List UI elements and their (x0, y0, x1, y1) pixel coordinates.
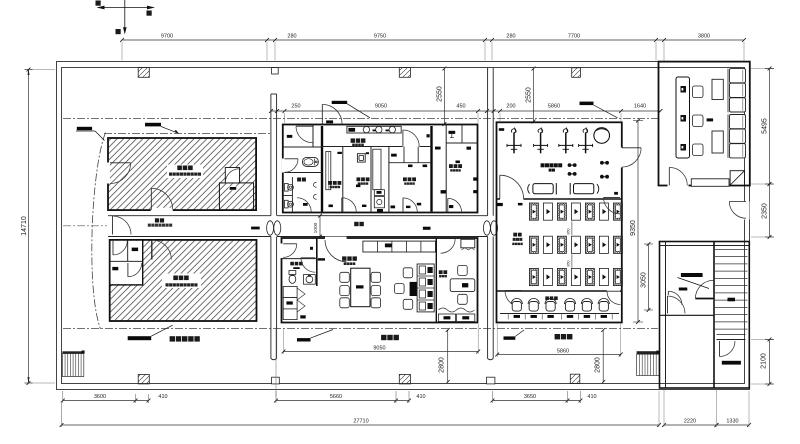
svg-text:410: 410 (587, 394, 596, 400)
svg-text:2100: 2100 (761, 353, 768, 369)
svg-text:410: 410 (158, 394, 167, 400)
svg-text:280: 280 (287, 34, 296, 40)
svg-text:280: 280 (506, 34, 515, 40)
svg-text:9700: 9700 (161, 34, 173, 40)
svg-text:2550: 2550 (526, 87, 533, 103)
svg-text:2800: 2800 (595, 357, 602, 373)
svg-text:5860: 5860 (557, 349, 569, 355)
svg-text:3600: 3600 (94, 394, 106, 400)
svg-text:5860: 5860 (548, 104, 560, 110)
svg-text:27710: 27710 (353, 419, 368, 425)
svg-text:9050: 9050 (375, 104, 387, 110)
svg-text:3650: 3650 (524, 394, 536, 400)
svg-text:1640: 1640 (634, 104, 646, 110)
svg-text:5660: 5660 (330, 394, 342, 400)
svg-text:410: 410 (416, 394, 425, 400)
svg-text:14710: 14710 (21, 216, 28, 236)
svg-text:2220: 2220 (684, 419, 696, 425)
svg-text:850: 850 (567, 261, 571, 267)
svg-text:2550: 2550 (437, 86, 444, 102)
svg-text:3050: 3050 (641, 272, 648, 288)
svg-text:3800: 3800 (698, 34, 710, 40)
svg-text:2800: 2800 (439, 357, 446, 373)
svg-text:2350: 2350 (762, 203, 769, 219)
svg-text:1330: 1330 (726, 419, 738, 425)
svg-text:850: 850 (567, 229, 571, 235)
svg-text:200: 200 (506, 104, 515, 110)
svg-text:450: 450 (456, 104, 465, 110)
svg-text:1000: 1000 (313, 222, 319, 233)
svg-text:250: 250 (291, 104, 300, 110)
svg-text:9750: 9750 (374, 34, 386, 40)
svg-text:9350: 9350 (630, 220, 637, 236)
svg-text:5495: 5495 (762, 118, 769, 134)
svg-text:7700: 7700 (568, 34, 580, 40)
svg-text:9050: 9050 (373, 346, 385, 352)
